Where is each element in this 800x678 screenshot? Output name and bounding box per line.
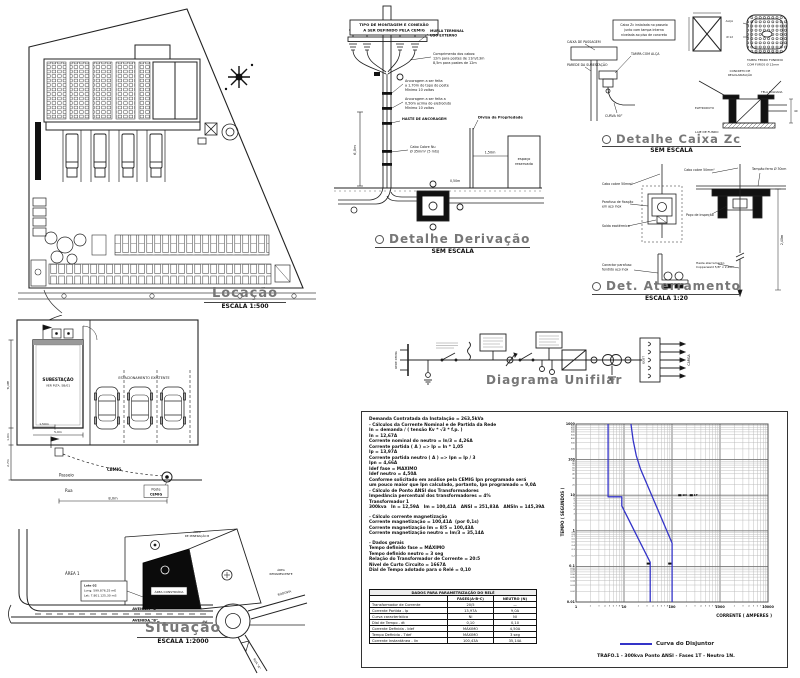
locacao-title-block: Locação ESCALA 1:500 — [190, 287, 300, 310]
unifilar-title-block: Diagrama Unifilar — [478, 374, 630, 388]
col-neutro: NEUTRO (N) — [494, 596, 536, 601]
qgbt-label: QGBT — [642, 356, 646, 364]
drawing-sheet: TIPO DE MONTAGEM E CONEXÃO A SER DEFINID… — [0, 0, 800, 678]
connector-label-1: Conector parafuso — [602, 263, 631, 267]
svg-text:0.3: 0.3 — [572, 549, 576, 551]
section-marker-icon — [592, 282, 601, 291]
svg-text:200: 200 — [571, 449, 576, 451]
coord-lote: Lote 02 — [84, 584, 97, 588]
svg-text:1N: 1N — [682, 493, 687, 497]
ground-rod-detail — [696, 164, 786, 296]
bolt-label-1: Parafuso de fixação — [602, 200, 633, 204]
fuse-link — [468, 342, 471, 360]
locacao-scale: ESCALA 1:500 — [190, 304, 300, 310]
mineracao-label-2: DE MINERAÇÃO B — [185, 533, 210, 538]
loading-docks-trucks — [63, 130, 165, 182]
svg-text:2: 2 — [734, 606, 736, 608]
room-label-1: SUBESTAÇÃO — [42, 377, 74, 382]
trench-dim: 40 — [794, 109, 798, 113]
utility-bus — [400, 344, 408, 376]
svg-text:0.08: 0.08 — [570, 570, 575, 572]
svg-text:0.7: 0.7 — [572, 536, 576, 538]
dim-6m: 6,0m — [352, 145, 357, 155]
reserved-2: reservado — [515, 162, 533, 166]
svg-text:5: 5 — [753, 606, 755, 608]
weld-label: Solda exotérmica — [602, 224, 630, 228]
svg-text:4: 4 — [574, 509, 576, 511]
svg-text:700: 700 — [571, 429, 576, 431]
sun-icon — [225, 64, 253, 90]
mufla-label-1: MUFLA TERMINAL — [430, 29, 465, 33]
grate-label-1: TAMPA FERRO FUNDIDO — [746, 58, 784, 62]
derivacao-title: Detalhe Derivação — [389, 233, 530, 246]
trench-label-3: TELA SOLDADA — [760, 90, 783, 94]
note-line-2: A SER DEFINIDO PELA CEMIG — [363, 28, 425, 33]
parking-rows — [31, 235, 290, 286]
svg-text:5: 5 — [657, 606, 659, 608]
svg-text:500: 500 — [571, 435, 576, 437]
svg-text:10: 10 — [570, 493, 575, 497]
svg-text:0.04: 0.04 — [570, 580, 575, 582]
pit-label: Poço de inspeção — [686, 213, 714, 217]
trench-section — [699, 81, 793, 128]
rod-dim: 2,40m — [780, 235, 784, 245]
unifilar-title: Diagrama Unifilar — [478, 374, 630, 388]
svg-text:80: 80 — [572, 463, 575, 465]
anchor1-2: a 1,70m do topo do poste — [405, 83, 449, 87]
derivacao-title-block: Detalhe Derivação SEM ESCALA — [375, 233, 530, 255]
box-plan-view — [689, 13, 721, 51]
svg-text:40: 40 — [572, 474, 575, 476]
svg-text:2: 2 — [590, 606, 592, 608]
anchor2-1: Ancoragem a ser feita a — [405, 97, 446, 101]
label-parede: PAREDE DA SUBESTAÇÃO — [567, 62, 608, 67]
grate-cover — [743, 15, 787, 53]
svg-text:0.5: 0.5 — [572, 541, 576, 543]
mufla-label-2: USO EXTERNO — [430, 33, 457, 37]
lot-outline — [17, 320, 198, 445]
ground-clamp-detail — [628, 164, 682, 242]
locacao-title: Locação — [204, 287, 286, 303]
caixa-title: Detalhe Caixa Zc — [616, 133, 741, 145]
copper-cable-1: Cabo Cobre Nu — [410, 145, 436, 149]
meter-boxes — [43, 325, 73, 339]
cable-length-2: 12m para postes de 11m/13m — [433, 56, 485, 60]
svg-text:6: 6 — [661, 606, 663, 608]
meter-box-1 — [480, 334, 506, 360]
svg-text:10: 10 — [622, 605, 627, 609]
svg-text:6: 6 — [613, 606, 615, 608]
cable-length-1: Comprimento dos cabos: — [433, 52, 475, 56]
anchor1-1: Ancoragem a ser feita — [405, 79, 443, 83]
svg-text:70: 70 — [572, 465, 575, 467]
x-axis-label: CORRENTE ( AMPERES ) — [716, 613, 772, 618]
svg-text:100: 100 — [568, 457, 575, 461]
trench-label-4: ELETRODUTO — [695, 106, 715, 110]
svg-text:4: 4 — [700, 606, 702, 608]
situacao-scale: ESCALA 1:2000 — [118, 639, 248, 645]
label-caixa-passagem: CAIXA DE PASSAGEM — [567, 40, 601, 44]
svg-text:1: 1 — [573, 529, 575, 533]
legend-label: Curva do Disjuntor — [656, 641, 714, 647]
svg-text:0.06: 0.06 — [570, 574, 575, 576]
zc-note-3: nivelada ao piso de concreto — [621, 33, 667, 37]
zc-note-1: Caixa Zc instalada no passeio — [620, 23, 668, 27]
rodovia-label: RODOVIA — [277, 589, 293, 597]
svg-text:5: 5 — [705, 606, 707, 608]
rod-label-2: Copperweld 5/8" x 2,40m — [696, 265, 734, 269]
tanks-and-trees — [33, 198, 86, 264]
room-label-2: VER PLTA. SB/01 — [46, 384, 70, 388]
svg-text:400: 400 — [571, 438, 576, 440]
situation-plan: ÁREA 1 ÁREA DE MINERAÇÃO B ÁREA REMANESC… — [5, 523, 337, 675]
coord-long: Long: 599.876,25 mE — [84, 589, 116, 593]
cable-label-left: Cabo cobre 50mm² — [602, 182, 633, 186]
svg-text:4: 4 — [748, 606, 750, 608]
dim-1m: 1,0m — [7, 433, 10, 441]
table-row: Corrente Instantânea - Iin100,43A35,14A — [370, 638, 536, 643]
svg-text:10000: 10000 — [762, 605, 774, 609]
svg-text:5: 5 — [574, 506, 576, 508]
zc-note-2: junto com tampa interna — [623, 28, 664, 32]
svg-text:1000: 1000 — [715, 605, 725, 609]
meter-box-2 — [536, 332, 562, 360]
locacao-site-plan — [2, 2, 332, 314]
pole-label-1: Poste — [151, 488, 160, 492]
svg-text:0.01: 0.01 — [567, 600, 575, 604]
svg-text:2: 2 — [574, 520, 576, 522]
haste-label: HASTE DE ANCORAGEM — [402, 117, 447, 121]
svg-text:0.2: 0.2 — [572, 555, 576, 557]
substation-plan: ESTACIONAMENTO EXISTENTE SUBESTAÇÃO VER … — [7, 315, 247, 515]
svg-text:5: 5 — [609, 606, 611, 608]
callout-bubble — [397, 74, 403, 80]
label-tampa-alca: TAMPA COM ALÇA — [630, 52, 660, 56]
derivation-labels: TIPO DE MONTAGEM E CONEXÃO A SER DEFINID… — [352, 22, 533, 183]
svg-text:0.05: 0.05 — [570, 577, 575, 579]
car — [128, 387, 153, 429]
caixa-title-block: Detalhe Caixa Zc SEM ESCALA — [602, 133, 741, 154]
svg-text:3: 3 — [598, 606, 600, 608]
storage-racks — [47, 62, 150, 119]
area1-label: ÁREA 1 — [65, 571, 80, 576]
parking-ghost-label: ESTACIONAMENTO EXISTENTE — [118, 376, 169, 380]
svg-text:3: 3 — [742, 606, 744, 608]
car — [95, 387, 120, 429]
svg-text:1000: 1000 — [566, 422, 576, 426]
dim-8m: 8,0m — [108, 497, 118, 501]
cable-label-right: Cabo cobre 50mm² — [684, 168, 715, 172]
breaker-curve-chart: TEMPO ( SEGUNDOS ) CORRENTE ( AMPERES ) … — [560, 420, 780, 634]
derivacao-scale: SEM ESCALA — [375, 249, 530, 255]
svg-text:7: 7 — [712, 606, 714, 608]
svg-text:30: 30 — [572, 478, 575, 480]
legend-line-swatch — [620, 643, 652, 645]
pole-label-2: CEMIG — [150, 493, 162, 497]
situacao-title: Situação — [137, 621, 229, 638]
cemig-route-label: CEMIG — [107, 467, 121, 472]
svg-text:60: 60 — [572, 467, 575, 469]
aterramento-scale: ESCALA 1:20 — [592, 296, 741, 302]
svg-text:0.02: 0.02 — [570, 591, 575, 593]
svg-text:0.4: 0.4 — [572, 545, 576, 547]
svg-text:0.1: 0.1 — [569, 564, 575, 568]
distribution-panel — [640, 338, 685, 382]
svg-text:2: 2 — [686, 606, 688, 608]
label-curva: CURVA 90° — [605, 114, 623, 118]
dimension-6m — [357, 112, 363, 186]
coord-lat: Lat: 7.801.125,30 mS — [84, 594, 117, 598]
avenida-label-1: AVENIDA "B" — [132, 607, 158, 611]
section-marker-icon — [375, 235, 384, 244]
cable-length-3: 8,5m para postes de 12m — [433, 61, 477, 65]
car — [161, 387, 186, 429]
svg-text:0.03: 0.03 — [570, 585, 575, 587]
svg-text:7: 7 — [616, 606, 618, 608]
grid-source-label: REDE CEMIG — [394, 351, 398, 369]
connector-label-2: fendido aço inox — [602, 267, 628, 271]
dim-27: 2,7m — [7, 459, 10, 467]
svg-text:4: 4 — [652, 606, 654, 608]
yard-equipment — [198, 123, 238, 144]
surge-arrester — [424, 360, 432, 384]
eave-section — [571, 44, 635, 121]
svg-text:4: 4 — [604, 606, 606, 608]
svg-text:6: 6 — [757, 606, 759, 608]
dimensions — [9, 340, 168, 504]
dim-150: 1,50m — [485, 151, 497, 155]
current-transformer-1 — [506, 353, 517, 366]
chart-legend: Curva do Disjuntor — [620, 641, 714, 647]
grate-label-2: COM FUROS Ø 12mm — [747, 62, 779, 67]
chart-caption: TRAFO.1 - 300kva Ponto ANSI - Fases 1T -… — [548, 654, 784, 659]
aterramento-title-block: Det. Aterramento ESCALA 1:20 — [592, 280, 741, 302]
svg-text:20: 20 — [572, 484, 575, 486]
svg-text:6: 6 — [709, 606, 711, 608]
svg-text:6: 6 — [574, 503, 576, 505]
load-label: CARGA — [687, 354, 691, 366]
parking-bays — [124, 370, 190, 445]
svg-text:1: 1 — [575, 605, 578, 609]
svg-text:0.8: 0.8 — [572, 534, 576, 536]
aterramento-title: Det. Aterramento — [606, 280, 741, 293]
label-alca: ALÇA — [726, 19, 733, 23]
detail-leader — [44, 290, 62, 313]
svg-text:7: 7 — [664, 606, 666, 608]
situacao-title-block: Situação ESCALA 1:2000 — [118, 621, 248, 645]
pole-derivation-detail: TIPO DE MONTAGEM E CONEXÃO A SER DEFINID… — [330, 0, 546, 266]
svg-text:2: 2 — [638, 606, 640, 608]
remanescente-label-2: REMANESCENTE — [270, 572, 293, 576]
svg-text:50: 50 — [572, 470, 575, 472]
note-line-1: TIPO DE MONTAGEM E CONEXÃO — [359, 22, 429, 27]
feeder-arrows — [660, 342, 685, 378]
property-line-label: Divisa da Propriedade — [478, 116, 523, 120]
svg-text:3: 3 — [646, 606, 648, 608]
disconnect-switch-1 — [436, 343, 458, 361]
section-marker-icon — [602, 135, 611, 144]
svg-text:3: 3 — [694, 606, 696, 608]
cover-label: Tampão ferro Ø 30cm — [751, 166, 786, 171]
svg-text:100: 100 — [668, 605, 676, 609]
svg-text:800: 800 — [571, 427, 576, 429]
calculation-notes: Demanda Contratada da Instalação = 263,5… — [369, 417, 565, 574]
subplan-labels: SUBESTAÇÃO VER PLTA. SB/01 6,0m 1,0m 2,7… — [7, 377, 162, 501]
built-area-label: ÁREA CONSTRUÍDA — [155, 589, 185, 594]
svg-text:3: 3 — [574, 514, 576, 516]
svg-text:8: 8 — [574, 498, 576, 500]
dim-5m: 5,0m — [54, 430, 62, 434]
dock-wall — [35, 122, 41, 180]
anchor1-3: Mínimo 10 voltas — [405, 88, 434, 92]
copper-cable-2: Ø 35mm² (5 mts) — [410, 148, 440, 153]
col-fases: FASES(A-B-C) — [448, 596, 494, 601]
relay-parameter-table: DADOS PARA PARAMETRIZAÇÃO DO RELÉ FASES(… — [369, 589, 537, 644]
relay-study-frame: Demanda Contratada da Instalação = 263,5… — [361, 411, 788, 668]
dim-6m: 6,0m — [7, 380, 10, 389]
trench-label-1b: REGULARIZAÇÃO — [728, 72, 753, 77]
label-furo: Ø 12 — [726, 34, 733, 39]
svg-text:600: 600 — [571, 432, 576, 434]
y-axis-label: TEMPO ( SEGUNDOS ) — [560, 487, 565, 536]
svg-text:0.6: 0.6 — [572, 539, 576, 541]
dim-150: 1,50m — [39, 422, 49, 426]
caixa-scale: SEM ESCALA — [602, 148, 741, 154]
street-label: Rua — [65, 488, 73, 493]
reserved-1: espaço — [518, 157, 531, 161]
anchor2-3: Mínimo 10 voltas — [405, 106, 434, 110]
svg-text:0.07: 0.07 — [570, 572, 575, 574]
sidewalk-label: Passeio — [59, 473, 74, 478]
bolt-label-2: em aço inox — [602, 204, 622, 208]
dim-050: 0,50m — [450, 179, 460, 183]
svg-text:7: 7 — [574, 501, 576, 503]
svg-text:300: 300 — [571, 442, 576, 444]
anchor2-2: 0,50m acima do eletroduto — [405, 101, 451, 105]
